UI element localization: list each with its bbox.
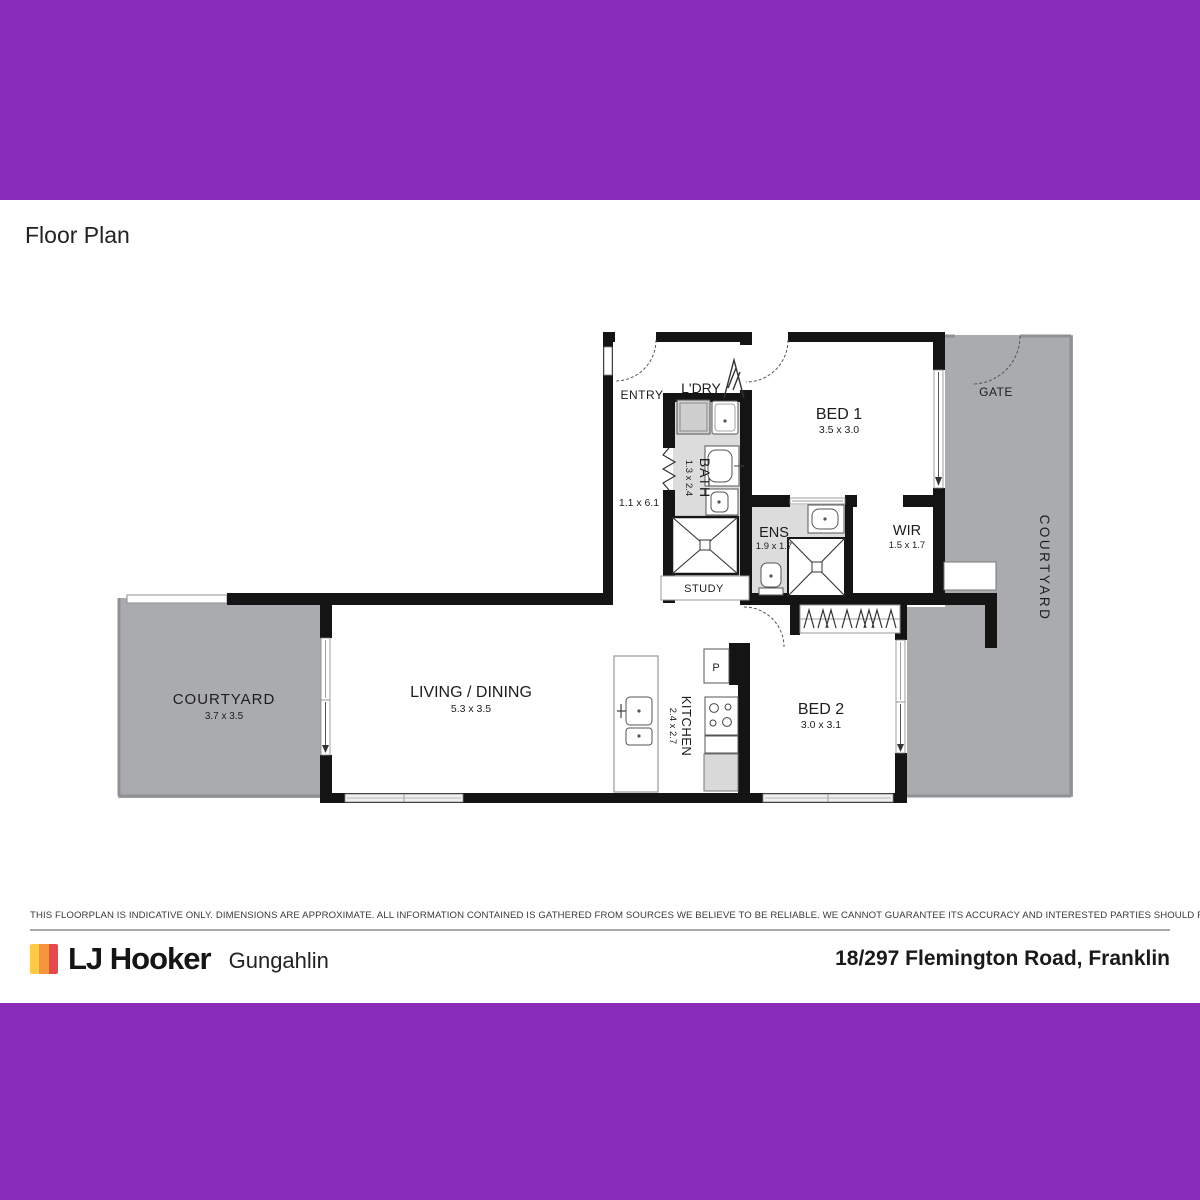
bath-label: BATH — [697, 458, 713, 498]
wir-dims: 1.5 x 1.7 — [889, 540, 925, 551]
kitchen-island — [614, 656, 658, 792]
ens-shower — [788, 538, 845, 596]
footer-divider — [30, 929, 1170, 931]
gate-label: GATE — [979, 385, 1013, 399]
living-label: LIVING / DINING — [410, 684, 532, 701]
cooktop — [705, 697, 738, 735]
disclaimer-text: THIS FLOORPLAN IS INDICATIVE ONLY. DIMEN… — [30, 910, 1175, 921]
wardrobe-rail — [800, 605, 900, 633]
brand-name: LJ Hooker — [68, 941, 211, 977]
entry-label: ENTRY — [621, 388, 664, 402]
office-name: Gungahlin — [229, 948, 329, 974]
bath-dims: 1.3 x 2.4 — [683, 460, 694, 496]
bottom-banner — [0, 1003, 1200, 1200]
laundry-tub — [712, 401, 738, 434]
ens-label: ENS — [759, 525, 789, 541]
kitchen-dims: 2.4 x 2.7 — [667, 708, 678, 744]
study-label: STUDY — [684, 583, 724, 595]
bed1-label: BED 1 — [816, 406, 862, 423]
courtyard-left-label: COURTYARD — [173, 691, 276, 708]
footer: LJ Hooker Gungahlin 18/297 Flemington Ro… — [30, 941, 1170, 977]
logo-stripe-red — [49, 944, 58, 974]
bed2-dims: 3.0 x 3.1 — [801, 719, 841, 731]
wir-label: WIR — [893, 523, 921, 539]
logo-stripe-orange — [39, 944, 48, 974]
laundry-label: L'DRY — [681, 380, 721, 396]
bed1-dims: 3.5 x 3.0 — [819, 424, 859, 436]
fence-panel — [127, 595, 227, 603]
bed1-door-arc — [746, 340, 788, 382]
bed2-label: BED 2 — [798, 701, 844, 718]
ens-toilet — [759, 563, 783, 595]
washer — [677, 400, 710, 434]
ljhooker-logo-icon — [30, 944, 58, 974]
courtyard-right-label: COURTYARD — [1037, 515, 1052, 622]
ens-dims: 1.9 x 1.7 — [756, 541, 792, 552]
courtyard-left-dims: 3.7 x 3.5 — [205, 711, 244, 722]
entry-door-arc — [615, 340, 656, 381]
bed2-door-arc — [744, 607, 784, 647]
kitchen-label: KITCHEN — [679, 696, 694, 757]
logo-stripe-yellow — [30, 944, 39, 974]
living-dims: 5.3 x 3.5 — [451, 703, 491, 715]
study-void — [672, 517, 738, 574]
kitchen-bench — [705, 736, 738, 753]
courtyard-store — [944, 562, 996, 590]
walls — [227, 332, 997, 803]
hall-dims: 1.1 x 6.1 — [619, 497, 659, 509]
fridge-space — [704, 754, 738, 791]
property-address: 18/297 Flemington Road, Franklin — [835, 947, 1170, 971]
courtyard-areas — [118, 335, 1073, 798]
pantry-label: P — [712, 662, 719, 674]
